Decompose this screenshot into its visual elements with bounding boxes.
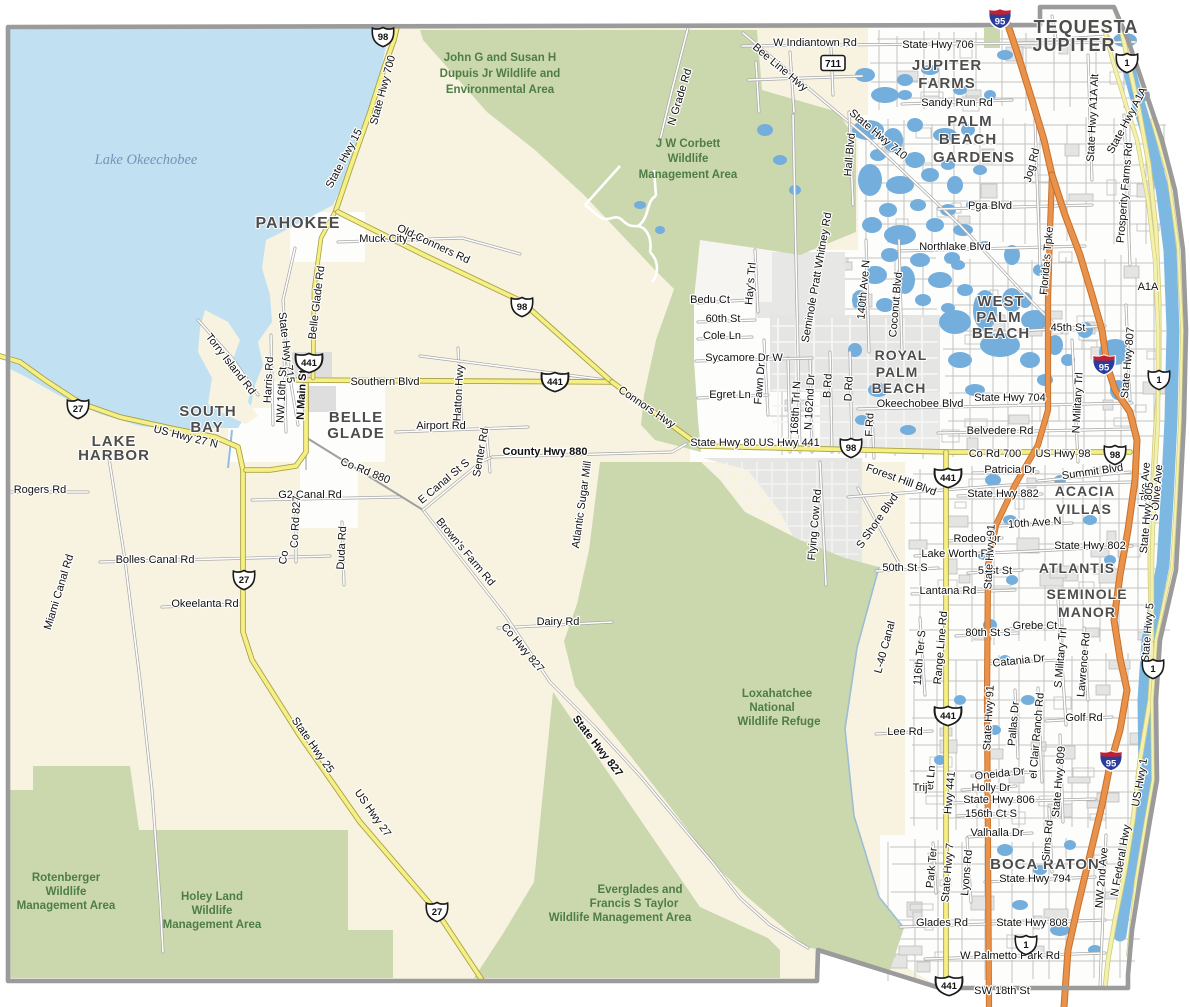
svg-text:Management Area: Management Area	[639, 169, 738, 181]
svg-text:95: 95	[995, 16, 1006, 27]
svg-text:FARMS: FARMS	[918, 75, 976, 92]
svg-text:Dupuis Jr Wildlife and: Dupuis Jr Wildlife and	[440, 68, 561, 80]
svg-text:Belvedere Rd: Belvedere Rd	[967, 425, 1034, 437]
svg-text:State Hwy 882: State Hwy 882	[967, 488, 1039, 500]
svg-text:Co Rd 700: Co Rd 700	[969, 448, 1022, 460]
svg-text:Patricia Dr: Patricia Dr	[984, 464, 1036, 476]
svg-text:WEST: WEST	[977, 293, 1024, 310]
svg-text:156th Ct S: 156th Ct S	[965, 808, 1017, 820]
svg-text:Valhalla Dr: Valhalla Dr	[971, 827, 1024, 839]
svg-text:National: National	[749, 702, 794, 714]
svg-text:VILLAS: VILLAS	[1056, 501, 1112, 517]
svg-text:Trij: Trij	[913, 782, 928, 794]
svg-text:98: 98	[846, 443, 857, 454]
svg-text:MANOR: MANOR	[1058, 604, 1116, 620]
svg-text:PALM: PALM	[947, 113, 992, 130]
svg-text:Okeechobee Blvd: Okeechobee Blvd	[877, 398, 964, 410]
svg-text:GARDENS: GARDENS	[933, 149, 1015, 166]
svg-text:F Rd: F Rd	[863, 413, 876, 437]
svg-text:BEACH: BEACH	[939, 131, 997, 148]
svg-text:TEQUESTA: TEQUESTA	[1034, 17, 1139, 37]
svg-text:J W Corbett: J W Corbett	[656, 138, 721, 150]
svg-text:Management Area: Management Area	[17, 900, 116, 912]
svg-text:Golf Rd: Golf Rd	[1065, 712, 1102, 724]
svg-text:1: 1	[1150, 664, 1156, 675]
svg-text:State Hwy 704: State Hwy 704	[974, 392, 1046, 404]
svg-text:441: 441	[547, 377, 564, 388]
svg-text:SEMINOLE: SEMINOLE	[1046, 586, 1127, 602]
svg-text:1: 1	[1124, 58, 1130, 69]
svg-text:Harris Rd: Harris Rd	[262, 356, 276, 403]
svg-text:HARBOR: HARBOR	[78, 447, 150, 464]
svg-text:Lantana Rd: Lantana Rd	[920, 585, 977, 597]
svg-text:27: 27	[73, 404, 84, 415]
svg-text:County Hwy 880: County Hwy 880	[503, 446, 588, 458]
svg-text:BEACH: BEACH	[972, 325, 1030, 342]
svg-text:A1A: A1A	[1138, 281, 1159, 293]
svg-text:ACACIA: ACACIA	[1055, 483, 1115, 499]
svg-text:PALM: PALM	[976, 309, 1021, 326]
svg-text:Egret Ln: Egret Ln	[709, 389, 751, 401]
svg-text:GLADE: GLADE	[327, 425, 385, 442]
svg-text:JUPITER: JUPITER	[1032, 35, 1115, 55]
svg-text:27: 27	[432, 907, 443, 918]
svg-text:Lake Okeechobee: Lake Okeechobee	[94, 152, 198, 168]
svg-text:State Hwy 706: State Hwy 706	[902, 39, 974, 51]
svg-text:Loxahatchee: Loxahatchee	[742, 688, 812, 700]
svg-text:98: 98	[517, 302, 528, 313]
svg-text:Sandy Run Rd: Sandy Run Rd	[921, 97, 993, 109]
svg-text:G2 Canal Rd: G2 Canal Rd	[278, 489, 342, 501]
svg-text:98: 98	[378, 32, 389, 43]
svg-text:Duda Rd: Duda Rd	[335, 526, 349, 570]
svg-text:BEACH: BEACH	[872, 380, 927, 396]
svg-text:ROYAL: ROYAL	[875, 347, 928, 363]
svg-text:Holly Dr: Holly Dr	[971, 782, 1010, 794]
svg-text:Wildlife Management Area: Wildlife Management Area	[549, 912, 692, 924]
svg-text:Dairy Rd: Dairy Rd	[537, 616, 580, 628]
svg-text:Grebe Ct: Grebe Ct	[1013, 620, 1058, 632]
svg-text:98: 98	[1110, 450, 1121, 461]
svg-text:27: 27	[239, 575, 250, 586]
svg-text:Environmental Area: Environmental Area	[446, 84, 555, 96]
svg-text:Pga Blvd: Pga Blvd	[968, 200, 1012, 212]
svg-text:BELLE: BELLE	[329, 409, 383, 426]
svg-text:45th St: 45th St	[1051, 322, 1086, 334]
svg-text:Holey Land: Holey Land	[181, 891, 243, 903]
svg-text:441: 441	[940, 473, 957, 484]
svg-text:Rogers Rd: Rogers Rd	[14, 484, 67, 496]
svg-text:John G and Susan H: John G and Susan H	[444, 52, 556, 64]
svg-text:Wildlife Refuge: Wildlife Refuge	[738, 716, 821, 728]
svg-text:Bedu Ct: Bedu Ct	[690, 294, 730, 306]
svg-text:State Hwy 802: State Hwy 802	[1054, 540, 1126, 552]
svg-text:Wildlife: Wildlife	[46, 886, 87, 898]
svg-text:441: 441	[940, 711, 957, 722]
svg-text:Everglades and: Everglades and	[597, 884, 682, 896]
svg-text:PAHOKEE: PAHOKEE	[256, 215, 341, 232]
svg-text:W Palmetto Park Rd: W Palmetto Park Rd	[960, 950, 1060, 962]
svg-text:80th St S: 80th St S	[965, 627, 1010, 639]
svg-text:Northlake Blvd: Northlake Blvd	[919, 241, 991, 253]
svg-text:D Rd: D Rd	[842, 376, 855, 402]
svg-text:State Hwy 80 US Hwy 441: State Hwy 80 US Hwy 441	[690, 437, 820, 449]
svg-text:Francis S Taylor: Francis S Taylor	[590, 898, 679, 910]
svg-text:95: 95	[1099, 362, 1110, 373]
svg-text:Management Area: Management Area	[163, 919, 262, 931]
svg-text:SOUTH: SOUTH	[179, 403, 237, 420]
svg-text:Okeelanta Rd: Okeelanta Rd	[171, 598, 238, 610]
svg-text:1: 1	[1156, 375, 1162, 386]
svg-text:Southern Blvd: Southern Blvd	[350, 376, 419, 388]
svg-text:State Hwy 794: State Hwy 794	[999, 873, 1071, 885]
svg-text:1: 1	[1023, 940, 1029, 951]
svg-text:Bolles Canal Rd: Bolles Canal Rd	[116, 554, 195, 566]
svg-text:W Indiantown Rd: W Indiantown Rd	[773, 37, 857, 49]
svg-text:Glades Rd: Glades Rd	[916, 917, 968, 929]
svg-text:711: 711	[825, 59, 842, 70]
svg-text:State Hwy 808: State Hwy 808	[996, 917, 1068, 929]
svg-text:Wildlife: Wildlife	[192, 905, 233, 917]
svg-text:PALM: PALM	[876, 364, 919, 380]
svg-text:JUPITER: JUPITER	[912, 57, 982, 74]
svg-text:B Rd: B Rd	[821, 373, 834, 398]
svg-text:Sycamore Dr W: Sycamore Dr W	[705, 352, 783, 364]
svg-text:ATLANTIS: ATLANTIS	[1039, 560, 1115, 576]
svg-text:Rotenberger: Rotenberger	[32, 872, 101, 884]
svg-text:95: 95	[1106, 758, 1117, 769]
svg-text:60th St: 60th St	[706, 313, 741, 325]
svg-text:US Hwy 98: US Hwy 98	[1035, 448, 1090, 460]
svg-text:SW 18th St: SW 18th St	[974, 985, 1030, 997]
svg-text:Co: Co	[277, 550, 291, 566]
svg-text:Lee Rd: Lee Rd	[887, 726, 922, 738]
svg-text:50th St S: 50th St S	[882, 562, 927, 574]
svg-text:Cole Ln: Cole Ln	[703, 330, 741, 342]
svg-text:State Hwy 806: State Hwy 806	[963, 794, 1035, 806]
svg-text:441: 441	[301, 358, 318, 369]
svg-text:Wildlife: Wildlife	[668, 153, 709, 165]
svg-text:441: 441	[941, 981, 958, 992]
